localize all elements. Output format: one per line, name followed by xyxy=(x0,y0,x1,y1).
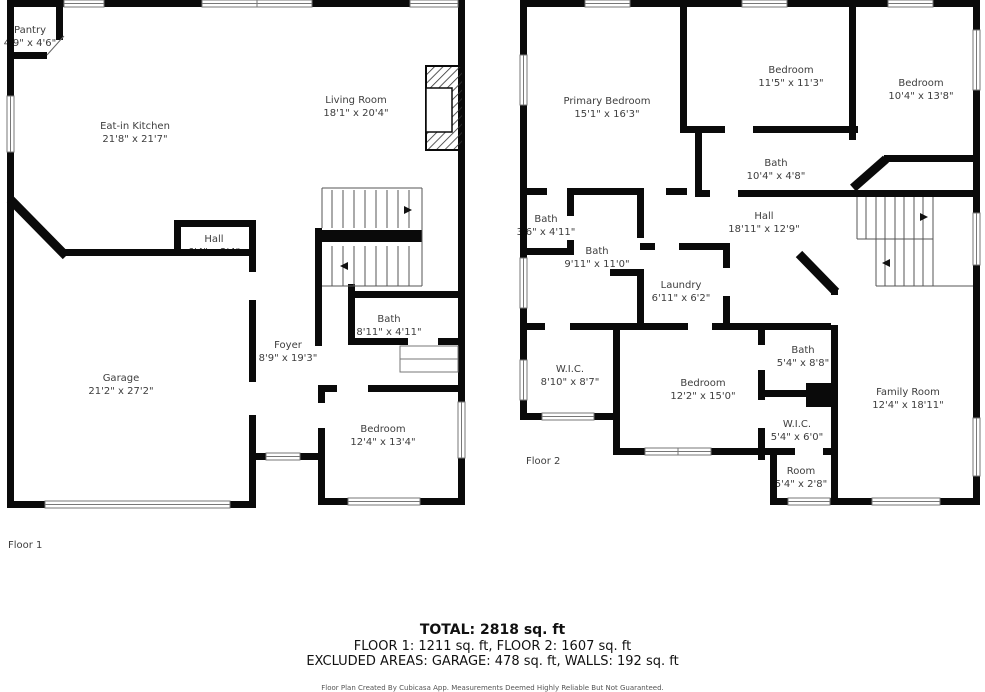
room-label-family-room: Family Room12'4" x 18'11" xyxy=(872,386,944,412)
room-label-pantry: Pantry4'9" x 4'6" xyxy=(4,24,56,50)
room-label-hall-f2: Hall18'11" x 12'9" xyxy=(728,210,800,236)
floorplan-canvas: Pantry4'9" x 4'6" Eat-in Kitchen21'8" x … xyxy=(0,0,985,692)
room-label-bedroom-115: Bedroom11'5" x 11'3" xyxy=(758,64,823,90)
room-label-wic-54: W.I.C.5'4" x 6'0" xyxy=(771,418,823,444)
room-label-laundry: Laundry6'11" x 6'2" xyxy=(652,279,711,305)
room-label-living-room: Living Room18'1" x 20'4" xyxy=(323,94,388,120)
room-label-bath-54: Bath5'4" x 8'8" xyxy=(777,344,829,370)
room-label-kitchen: Eat-in Kitchen21'8" x 21'7" xyxy=(100,120,170,146)
room-label-room-54: Room5'4" x 2'8" xyxy=(775,465,827,491)
room-label-bath-f1: Bath8'11" x 4'11" xyxy=(356,313,421,339)
room-label-hall-f1: Hall6'4" x 2'4" xyxy=(188,233,240,259)
room-label-wic-810: W.I.C.8'10" x 8'7" xyxy=(541,363,600,389)
room-label-primary-bedroom: Primary Bedroom15'1" x 16'3" xyxy=(563,95,650,121)
room-label-bath-36: Bath3'6" x 4'11" xyxy=(517,213,576,239)
room-label-bedroom-122: Bedroom12'2" x 15'0" xyxy=(670,377,735,403)
room-label-bedroom-f1: Bedroom12'4" x 13'4" xyxy=(350,423,415,449)
room-label-bedroom-104: Bedroom10'4" x 13'8" xyxy=(888,77,953,103)
room-label-foyer: Foyer8'9" x 19'3" xyxy=(259,339,318,365)
room-label-bath-104: Bath10'4" x 4'8" xyxy=(747,157,806,183)
room-labels-layer: Pantry4'9" x 4'6" Eat-in Kitchen21'8" x … xyxy=(0,0,985,692)
room-label-bath-911: Bath9'11" x 11'0" xyxy=(564,245,629,271)
room-label-garage: Garage21'2" x 27'2" xyxy=(88,372,153,398)
